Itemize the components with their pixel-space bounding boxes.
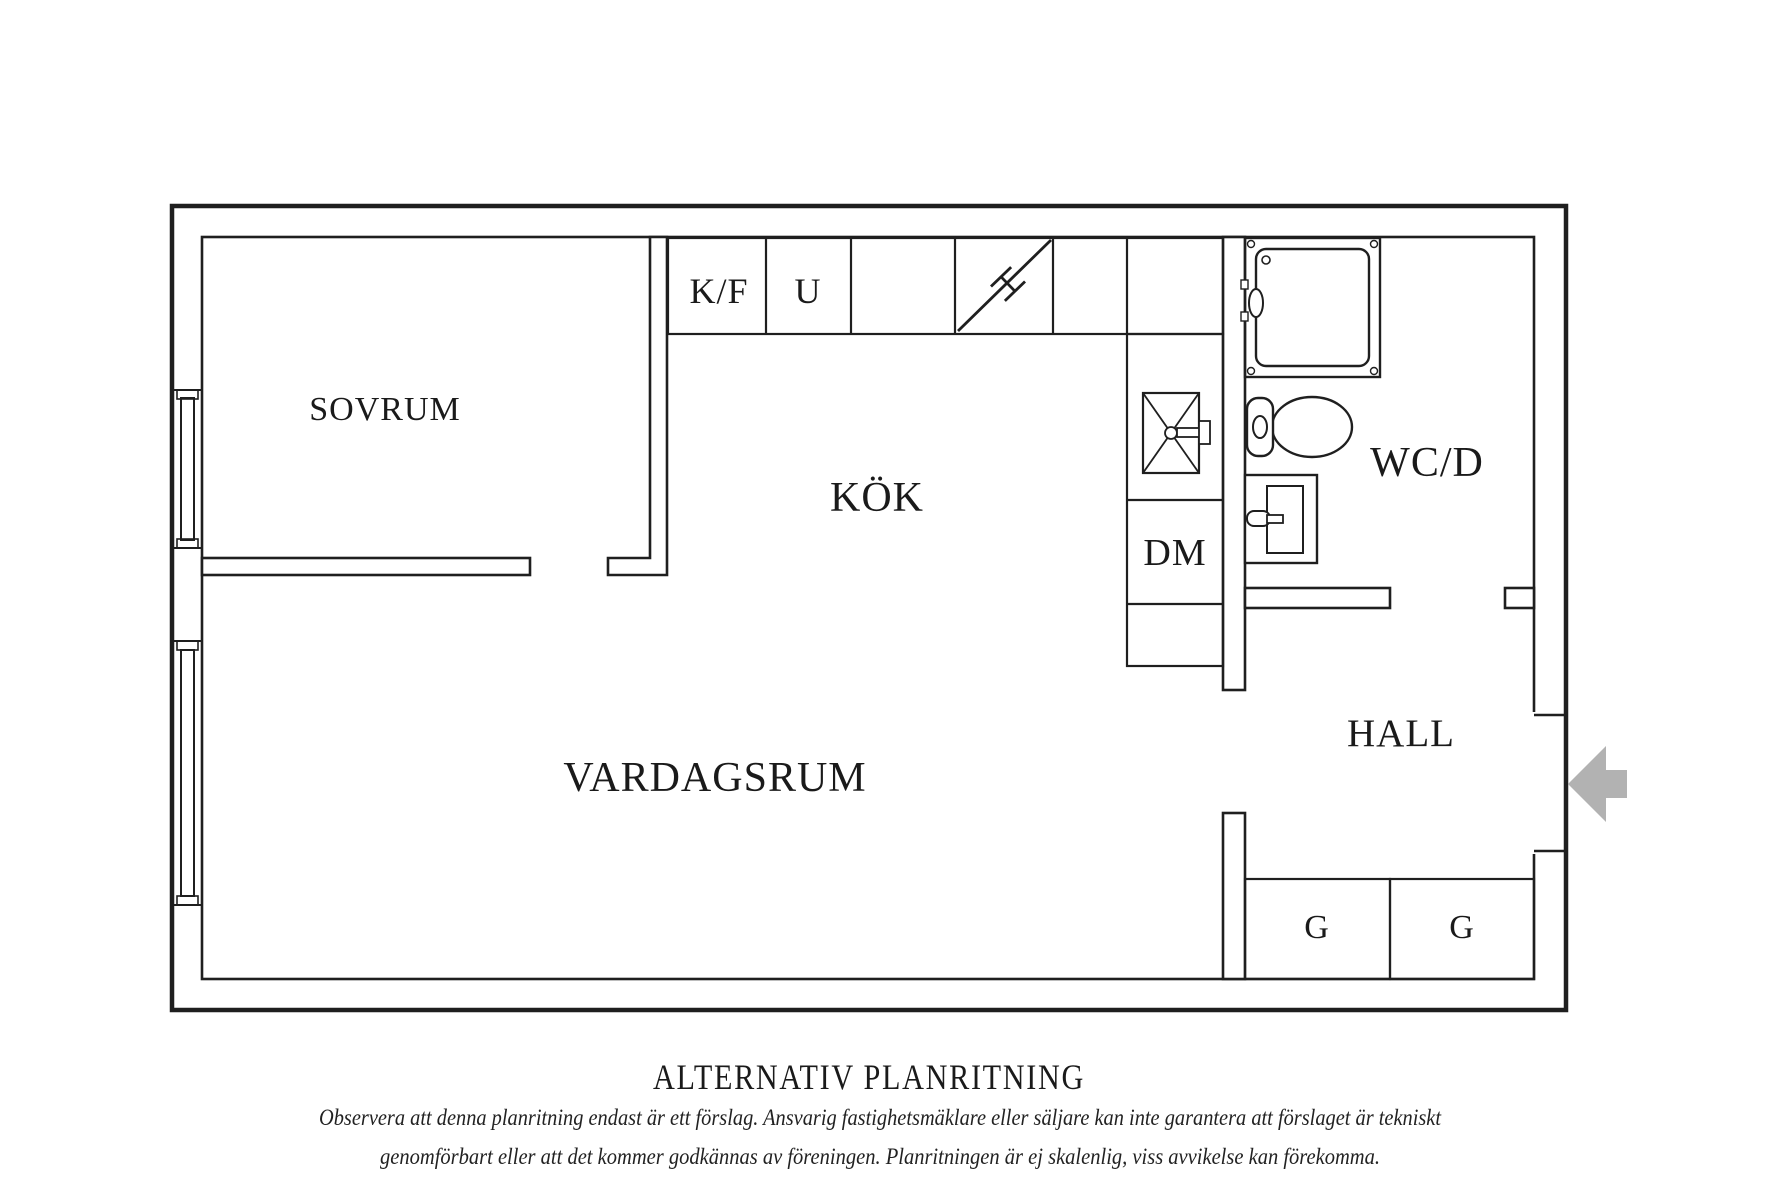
room-label-sovrum: SOVRUM [309,391,460,428]
toilet-icon [1247,397,1352,457]
fixture-label-closet-left: G [1304,909,1330,946]
disclaimer-line-2: genomförbart eller att det kommer godkän… [380,1144,1380,1169]
entry-door-opening [1529,712,1571,854]
fixture-label-ugn: U [795,271,822,311]
wall-sovrum-vardagsrum [202,558,530,575]
wall-wcd-bottom-stub [1505,588,1534,608]
room-label-kok: KÖK [830,475,924,521]
room-label-hall: HALL [1347,712,1455,755]
room-label-vardagsrum: VARDAGSRUM [563,755,866,801]
disclaimer-line-1: Observera att denna planritning endast ä… [319,1105,1442,1130]
plan-title: ALTERNATIV PLANRITNING [653,1057,1085,1097]
washbasin-icon [1245,475,1317,563]
room-label-wcd: WC/D [1370,440,1484,486]
wall-hall-vardagsrum [1223,813,1245,979]
fixture-label-diskmaskin: DM [1143,532,1206,574]
floor-plan: SOVRUM KÖK VARDAGSRUM WC/D HALL K/F U DM… [0,0,1780,1187]
fixture-label-kyl-frys: K/F [689,271,748,311]
wall-kok-hall [1223,237,1245,690]
fixture-label-closet-right: G [1449,909,1475,946]
wall-wcd-bottom [1245,588,1390,608]
